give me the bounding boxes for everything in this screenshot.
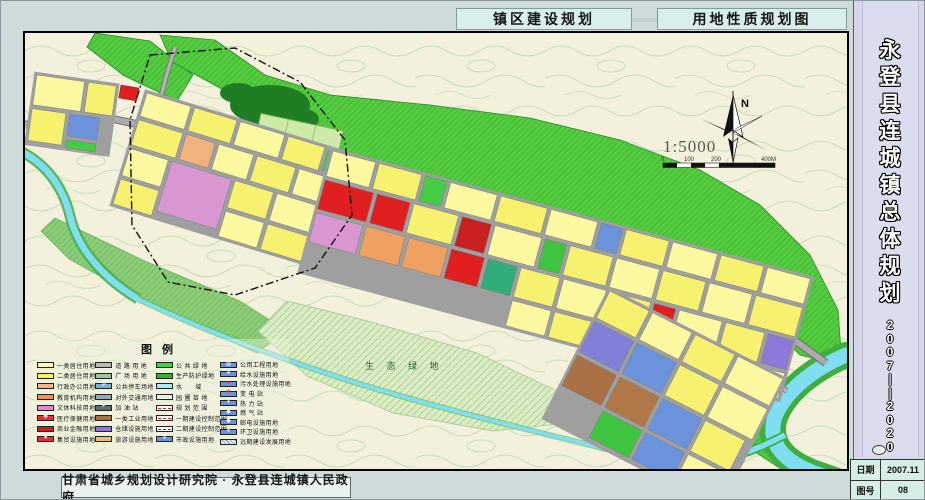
legend-item: 远期建设发展用地 — [220, 437, 287, 447]
legend-item: ✦集贸设施用地 — [37, 434, 95, 445]
legend-label: 仓储设施用地 — [115, 424, 153, 433]
legend-item: 旅游设施用地 — [95, 434, 156, 445]
legend-item: 公 共 绿 地 — [156, 360, 220, 371]
sidebar-year-char: 2 — [887, 400, 894, 414]
legend-swatch — [95, 373, 112, 379]
sidebar-title-char: 永 — [880, 37, 901, 64]
legend-item: ✦变 电 站 — [220, 389, 287, 399]
legend-swatch — [156, 415, 173, 421]
legend-glyph: P — [96, 384, 111, 388]
legend-swatch — [37, 362, 54, 368]
legend-label: 热 力 站 — [240, 399, 263, 408]
legend-label: 污水处理设施用地 — [240, 379, 291, 388]
legend-line — [158, 418, 171, 419]
legend-label: 市政设施用地 — [176, 435, 214, 444]
legend-item: 二期建设控制范围 — [156, 424, 220, 435]
legend-item: 商业金融用地 — [37, 424, 95, 435]
legend-column-2: 道 路 用 地广 场 用 地P公共停车场地对外交通用地P加 油 站一类工业用地仓… — [95, 360, 156, 446]
legend-label: 二类居住用地 — [57, 371, 95, 380]
sidebar-title-char: 划 — [880, 280, 901, 307]
legend-item: ●环卫设施用地 — [220, 427, 287, 437]
legend-label: 一类居住用地 — [57, 361, 95, 370]
legend-swatch — [37, 426, 54, 432]
legend-swatch: ✦ — [220, 391, 237, 397]
legend-label: 教育机构用地 — [57, 393, 95, 402]
legend-swatch: ● — [220, 429, 237, 435]
sidebar-title-char: 城 — [880, 145, 901, 172]
legend-swatch: ◆ — [220, 410, 237, 416]
info-table: 日期 2007.11 图号 08 — [850, 459, 925, 500]
legend-swatch — [95, 415, 112, 421]
legend-item: ◆燃 气 站 — [220, 408, 287, 418]
legend-item: 一类居住用地 — [37, 360, 95, 371]
sidebar-title-char: 登 — [880, 64, 901, 91]
sidebar-year-char: 0 — [887, 441, 894, 455]
legend-swatch: ● — [220, 400, 237, 406]
north-label: N — [741, 98, 749, 110]
sheet-map-title: 用地性质规划图 — [657, 8, 847, 30]
map-title-text: 用地性质规划图 — [693, 9, 812, 29]
legend-swatch — [95, 362, 112, 368]
legend-swatch — [37, 373, 54, 379]
legend-label: 生产防护绿地 — [176, 371, 214, 380]
legend-label: 商业金融用地 — [57, 424, 95, 433]
scale-tick-3: 400M — [761, 157, 776, 163]
legend-item: ◈邮电设施用地 — [220, 418, 287, 428]
legend-glyph: ◆ — [221, 410, 236, 414]
credit-box: 甘肃省城乡规划设计研究院 · 永登县连城镇人民政府 — [61, 477, 351, 498]
legend-glyph: ◈ — [221, 420, 236, 424]
legend-swatch — [95, 394, 112, 400]
sheet-series-title: 镇区建设规划 — [456, 8, 632, 30]
legend: 图例 一类居住用地二类居住用地行政办公用地教育机构用地文体科技用地✚医疗保健用地… — [35, 339, 289, 449]
map-frame: N 1:5000 0 100 200 400M 生 态 绿 地 图例 一类居住用… — [23, 31, 849, 471]
legend-swatch: ● — [220, 381, 237, 387]
legend-item: 教育机构用地 — [37, 392, 95, 403]
legend-line — [158, 429, 171, 430]
plan-sheet: 镇区建设规划 用地性质规划图 — [0, 0, 925, 500]
legend-label: 文体科技用地 — [57, 403, 95, 412]
legend-swatch — [156, 383, 173, 389]
legend-label: 集贸设施用地 — [57, 435, 95, 444]
sidebar-year-char: 2 — [887, 427, 894, 441]
sidebar-year-char: 2 — [887, 319, 894, 333]
legend-label: 对外交通用地 — [115, 393, 153, 402]
eco-area-label: 生 态 绿 地 — [365, 360, 444, 371]
sidebar-title-char: 总 — [880, 199, 901, 226]
sidebar-year-char: — — [883, 374, 897, 386]
series-title-text: 镇区建设规划 — [493, 9, 595, 29]
sidebar-year-char: 0 — [887, 346, 894, 360]
sidebar-title-char: 规 — [880, 253, 901, 280]
sidebar-title-char: 连 — [880, 118, 901, 145]
legend-glyph: ✦ — [38, 437, 53, 441]
sidebar-year-char: 7 — [887, 360, 894, 374]
legend-label: 医疗保健用地 — [57, 414, 95, 423]
credit-text: 甘肃省城乡规划设计研究院 · 永登县连城镇人民政府 — [62, 471, 350, 500]
legend-item: ✚医疗保健用地 — [37, 413, 95, 424]
legend-label: 规 划 范 围 — [176, 403, 208, 412]
legend-swatch: ◎ — [220, 362, 237, 368]
legend-label: 公用工程用地 — [240, 360, 278, 369]
legend-item: ●污水处理设施用地 — [220, 379, 287, 389]
sidebar: 永登县连城镇总体规划 2007——2020 — [853, 1, 925, 500]
legend-label: 公 共 绿 地 — [176, 361, 208, 370]
info-row-date: 日期 2007.11 — [851, 460, 925, 481]
legend-swatch — [95, 426, 112, 432]
legend-swatch — [156, 373, 173, 379]
sheetno-value: 08 — [881, 481, 925, 500]
legend-label: 加 油 站 — [115, 403, 138, 412]
west-parcels — [25, 72, 120, 157]
legend-swatch — [156, 426, 173, 432]
legend-label: 远期建设发展用地 — [240, 437, 291, 446]
legend-label: 旅游设施用地 — [115, 435, 153, 444]
legend-label: 园 圃 苗 地 — [176, 393, 208, 402]
legend-label: 燃 气 站 — [240, 408, 263, 417]
legend-label: 广 场 用 地 — [115, 371, 147, 380]
legend-label: 道 路 用 地 — [115, 361, 147, 370]
legend-glyph: ✦ — [221, 391, 236, 395]
sidebar-title-char: 县 — [880, 91, 901, 118]
legend-swatch — [156, 405, 173, 411]
legend-label: 一类工业用地 — [115, 414, 153, 423]
legend-label: 给水设施用地 — [240, 370, 278, 379]
legend-column-1: 一类居住用地二类居住用地行政办公用地教育机构用地文体科技用地✚医疗保健用地商业金… — [37, 360, 95, 446]
sidebar-year-range: 2007——2020 — [854, 319, 925, 454]
legend-glyph: ◎ — [221, 362, 236, 366]
legend-glyph: ● — [221, 429, 236, 433]
legend-swatch — [37, 405, 54, 411]
sheetno-label: 图号 — [851, 481, 881, 500]
scale-text: 1:5000 — [663, 137, 716, 156]
legend-item: 规 划 范 围 — [156, 402, 220, 413]
legend-swatch — [95, 436, 112, 442]
legend-item: ●给水设施用地 — [220, 370, 287, 380]
legend-swatch: ● — [156, 436, 173, 442]
legend-line — [158, 408, 171, 409]
legend-label: 环卫设施用地 — [240, 427, 278, 436]
west-red-block — [119, 85, 139, 101]
legend-item: P公共停车场地 — [95, 381, 156, 392]
legend-label: 邮电设施用地 — [240, 418, 278, 427]
legend-glyph: ● — [221, 372, 236, 376]
legend-title: 图例 — [37, 341, 287, 357]
legend-item: 道 路 用 地 — [95, 360, 156, 371]
sidebar-year-char: — — [883, 387, 897, 399]
sidebar-vertical-title: 永登县连城镇总体规划 — [854, 37, 925, 307]
legend-swatch: P — [95, 405, 112, 411]
legend-glyph: ● — [221, 401, 236, 405]
legend-swatch: ✦ — [37, 436, 54, 442]
legend-swatch — [37, 394, 54, 400]
legend-label: 公共停车场地 — [115, 382, 153, 391]
info-row-sheetno: 图号 08 — [851, 481, 925, 500]
legend-glyph: ● — [221, 381, 236, 385]
legend-columns: 一类居住用地二类居住用地行政办公用地教育机构用地文体科技用地✚医疗保健用地商业金… — [37, 360, 287, 446]
legend-item: ●热 力 站 — [220, 398, 287, 408]
legend-item: 仓储设施用地 — [95, 424, 156, 435]
legend-swatch — [220, 439, 237, 445]
legend-item: 生产防护绿地 — [156, 371, 220, 382]
legend-swatch — [156, 362, 173, 368]
legend-item: 行政办公用地 — [37, 381, 95, 392]
legend-label: 变 电 站 — [240, 389, 263, 398]
sidebar-year-char: 0 — [887, 414, 894, 428]
scale-tick-1: 100 — [684, 157, 695, 163]
legend-swatch: P — [95, 383, 112, 389]
legend-swatch: ◈ — [220, 419, 237, 425]
date-label: 日期 — [851, 460, 881, 480]
legend-item: 水 域 — [156, 381, 220, 392]
legend-swatch: ✚ — [37, 415, 54, 421]
legend-item: ◎公用工程用地 — [220, 360, 287, 370]
legend-item: 一类工业用地 — [95, 413, 156, 424]
legend-item: 文体科技用地 — [37, 402, 95, 413]
legend-glyph: ● — [157, 437, 172, 441]
legend-column-4: ◎公用工程用地●给水设施用地●污水处理设施用地✦变 电 站●热 力 站◆燃 气 … — [220, 360, 287, 446]
legend-label: 行政办公用地 — [57, 382, 95, 391]
legend-item: 广 场 用 地 — [95, 371, 156, 382]
legend-item: P加 油 站 — [95, 402, 156, 413]
legend-item: ●市政设施用地 — [156, 434, 220, 445]
scale-tick-2: 200 — [711, 157, 722, 163]
stamp-icon — [872, 445, 886, 455]
legend-glyph: ✚ — [38, 416, 53, 420]
legend-swatch — [156, 394, 173, 400]
title-connector — [632, 18, 657, 22]
sidebar-title-char: 镇 — [880, 172, 901, 199]
legend-swatch: ● — [220, 371, 237, 377]
sidebar-year-char: 0 — [887, 333, 894, 347]
legend-item: 一期建设控制范围 — [156, 413, 220, 424]
legend-glyph: P — [96, 405, 111, 409]
legend-item: 对外交通用地 — [95, 392, 156, 403]
legend-swatch — [37, 383, 54, 389]
legend-column-3: 公 共 绿 地生产防护绿地水 域园 圃 苗 地规 划 范 围一期建设控制范围二期… — [156, 360, 220, 446]
legend-label: 水 域 — [176, 382, 202, 391]
legend-item: 园 圃 苗 地 — [156, 392, 220, 403]
date-value: 2007.11 — [881, 460, 925, 480]
sidebar-title-char: 体 — [880, 226, 901, 253]
legend-item: 二类居住用地 — [37, 371, 95, 382]
